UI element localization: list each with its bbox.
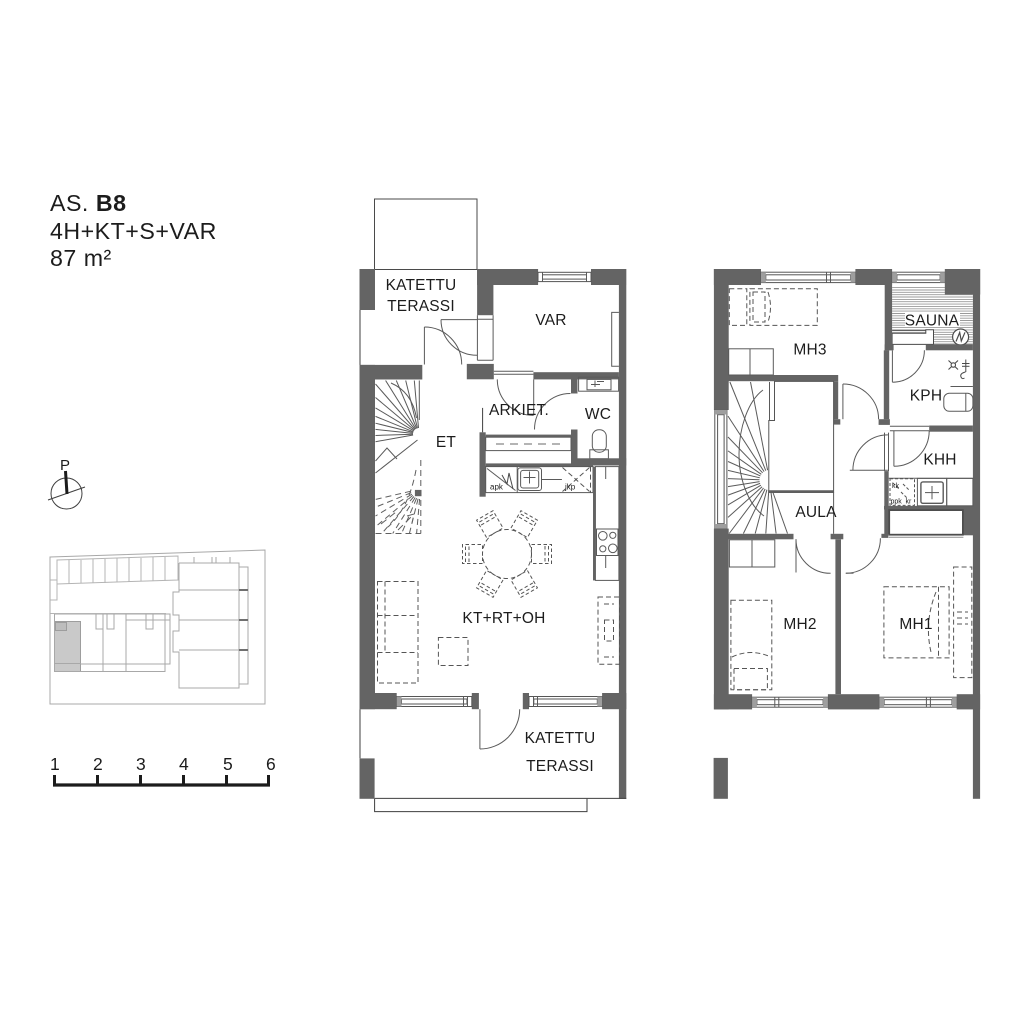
svg-text:MH2: MH2 <box>783 616 816 633</box>
svg-text:4: 4 <box>179 754 189 774</box>
svg-text:MH3: MH3 <box>793 342 826 359</box>
svg-text:KATETTU: KATETTU <box>525 730 596 747</box>
svg-text:TERASSI: TERASSI <box>526 758 594 775</box>
svg-text:SAUNA: SAUNA <box>905 313 960 330</box>
svg-text:kr: kr <box>906 499 913 506</box>
svg-text:AULA: AULA <box>795 504 837 521</box>
svg-text:ET: ET <box>436 434 457 451</box>
svg-text:ARKIET.: ARKIET. <box>489 402 549 419</box>
svg-text:87 m²: 87 m² <box>50 245 112 271</box>
svg-text:1: 1 <box>50 754 60 774</box>
svg-text:ppk: ppk <box>891 499 903 506</box>
svg-text:KPH: KPH <box>910 388 942 405</box>
svg-text:kk: kk <box>892 483 900 490</box>
svg-text:6: 6 <box>266 754 276 774</box>
svg-text:4H+KT+S+VAR: 4H+KT+S+VAR <box>50 218 217 244</box>
svg-text:MH1: MH1 <box>899 616 932 633</box>
svg-text:2: 2 <box>93 754 103 774</box>
svg-text:TERASSI: TERASSI <box>387 298 455 315</box>
svg-text:apk: apk <box>490 483 504 492</box>
svg-text:KHH: KHH <box>923 452 956 469</box>
svg-text:KATETTU: KATETTU <box>386 277 457 294</box>
svg-text:jkp: jkp <box>564 483 576 492</box>
svg-text:AS. B8: AS. B8 <box>50 190 126 216</box>
svg-text:3: 3 <box>136 754 146 774</box>
svg-text:VAR: VAR <box>535 312 566 329</box>
svg-text:KT+RT+OH: KT+RT+OH <box>462 610 545 627</box>
svg-text:WC: WC <box>585 406 611 423</box>
svg-text:5: 5 <box>223 754 233 774</box>
